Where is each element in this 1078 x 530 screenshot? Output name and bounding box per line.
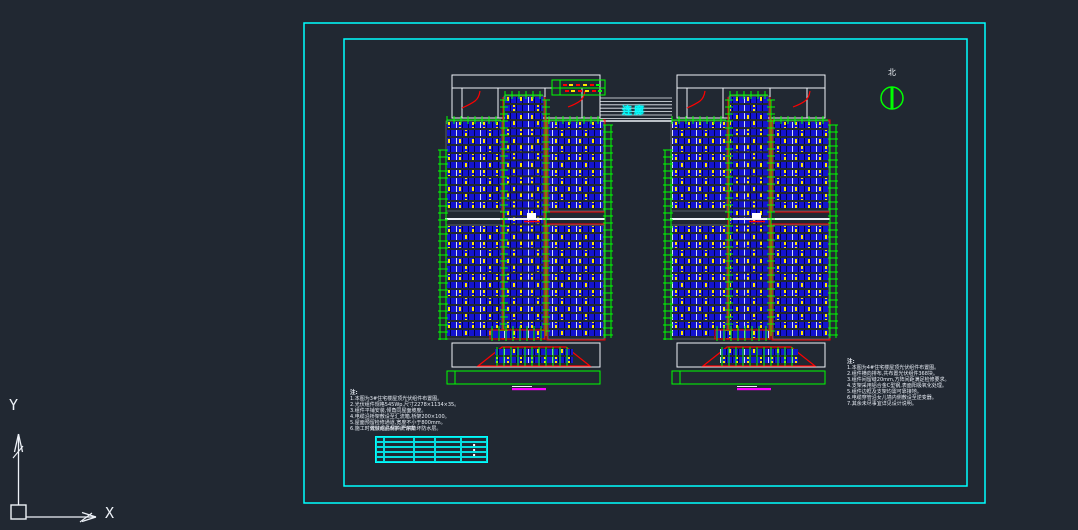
ucs-x-label: X <box>105 504 114 522</box>
ucs-y-label: Y <box>9 396 18 414</box>
building-right <box>663 75 838 390</box>
drawing-svg <box>0 0 1078 530</box>
table-cell <box>384 457 414 462</box>
equipment-box <box>552 80 605 95</box>
note-line: 7.其余未尽事宜详见设计说明。 <box>847 401 949 407</box>
table-cell <box>435 457 461 462</box>
table-cell <box>461 457 487 462</box>
north-arrow-icon <box>881 87 903 109</box>
ucs-icon <box>11 434 96 522</box>
table-cell <box>414 457 435 462</box>
corridor-label: 连廊 <box>622 102 646 117</box>
material-table-title: 光伏组件材料统计表 <box>370 425 415 432</box>
cad-viewport[interactable]: 连廊 北 Y X 注: 1.本图为3#住宅楼屋顶光伏组件布置图。2.光伏组件规格… <box>0 0 1078 530</box>
material-table: ▪▪▪ <box>375 436 488 463</box>
notes-right: 注: 1.本图为4#住宅楼屋顶光伏组件布置图。2.组件横向排布,共布置光伏组件3… <box>847 359 949 407</box>
notes-right-lines: 1.本图为4#住宅楼屋顶光伏组件布置图。2.组件横向排布,共布置光伏组件368块… <box>847 365 949 407</box>
building-left <box>438 75 613 390</box>
table-cell <box>376 457 384 462</box>
north-label: 北 <box>888 67 896 78</box>
